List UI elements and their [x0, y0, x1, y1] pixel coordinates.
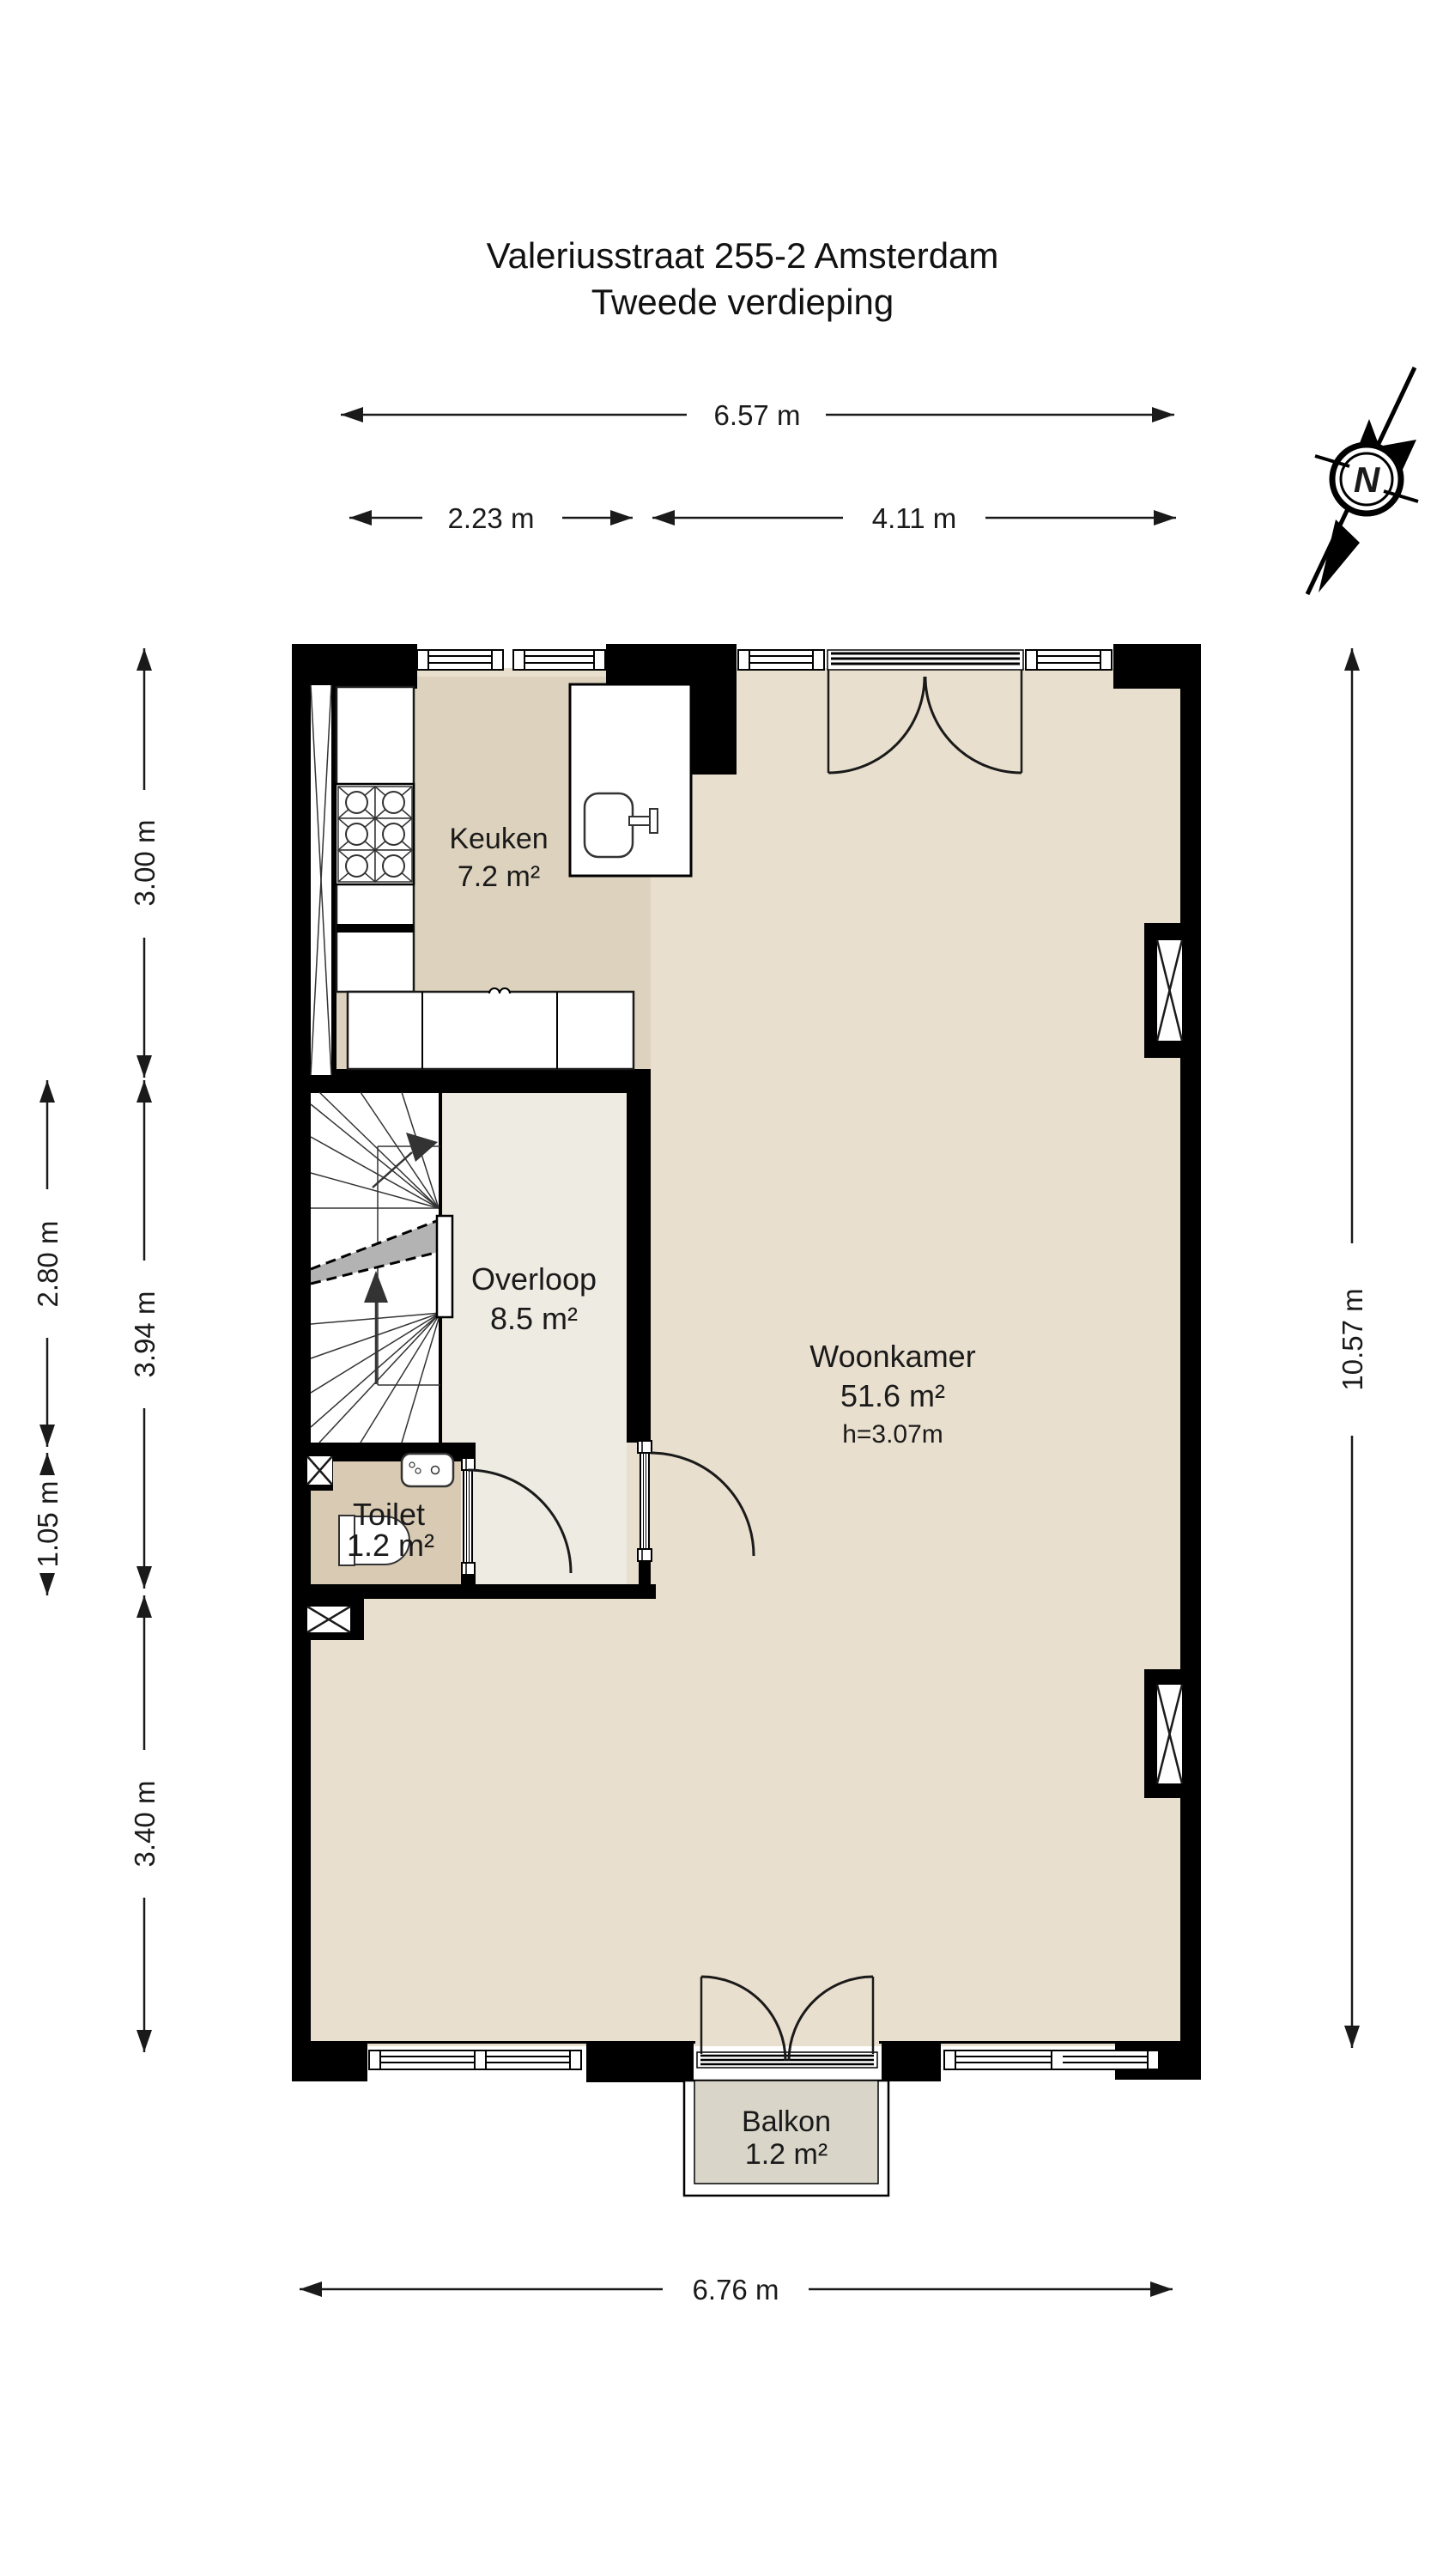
- room-area-balkon: 1.2 m²: [745, 2138, 828, 2171]
- window: [475, 2050, 581, 2069]
- dimension-top-total: 6.57 m: [341, 399, 1174, 431]
- flue-x-upper: [1157, 940, 1182, 1041]
- french-door-threshold-top: [828, 650, 1023, 670]
- room-area-overloop: 8.5 m²: [490, 1301, 578, 1336]
- toilet-hand-basin: [402, 1454, 453, 1486]
- room-label-keuken: Keuken: [449, 823, 548, 855]
- window: [417, 650, 503, 670]
- stairs-railing: [437, 1216, 452, 1317]
- shaft-x: [311, 685, 331, 1075]
- room-height-woonkamer: h=3.07m: [842, 1420, 943, 1449]
- kitchen-counter-bottom: [348, 988, 634, 1069]
- room-area-toilet: 1.2 m²: [347, 1528, 434, 1563]
- window: [1026, 650, 1112, 670]
- page-subtitle: Tweede verdieping: [591, 282, 894, 322]
- kitchen-sink-unit: [570, 684, 691, 876]
- floorplan-drawing: Valeriusstraat 255-2 Amsterdam Tweede ve…: [0, 0, 1449, 2576]
- window: [369, 2050, 475, 2069]
- sink-basin: [585, 793, 633, 857]
- dimension-bottom-total: 6.76 m: [300, 2274, 1173, 2306]
- room-area-keuken: 7.2 m²: [458, 860, 540, 893]
- svg-text:6.57 m: 6.57 m: [714, 399, 801, 431]
- dimension-left-upper: 3.00 m: [129, 648, 161, 1078]
- dimension-left-outer-lower: 1.05 m: [32, 1453, 64, 1595]
- floorplan-page: Valeriusstraat 255-2 Amsterdam Tweede ve…: [0, 0, 1449, 2576]
- dimension-left-middle: 3.94 m: [129, 1080, 161, 1589]
- windows-top: [417, 650, 1112, 670]
- window: [513, 650, 605, 670]
- room-label-toilet: Toilet: [353, 1497, 425, 1532]
- room-label-balkon: Balkon: [742, 2105, 831, 2138]
- dimension-top-right: 4.11 m: [652, 502, 1176, 534]
- window: [738, 650, 824, 670]
- dimension-top-left: 2.23 m: [349, 502, 633, 534]
- svg-text:2.23 m: 2.23 m: [448, 502, 535, 534]
- balcony-door-threshold: [697, 2052, 877, 2068]
- svg-text:3.00 m: 3.00 m: [129, 820, 161, 907]
- column-x-1: [307, 1456, 332, 1485]
- dimension-left-outer-upper: 2.80 m: [32, 1080, 64, 1447]
- burner-grid: [338, 787, 412, 882]
- svg-text:3.40 m: 3.40 m: [129, 1781, 161, 1868]
- dimension-right-total: 10.57 m: [1337, 648, 1368, 2048]
- dimension-left-lower: 3.40 m: [129, 1595, 161, 2052]
- north-arrow-icon: N: [1307, 368, 1418, 594]
- room-label-overloop: Overloop: [471, 1261, 597, 1297]
- svg-text:3.94 m: 3.94 m: [129, 1291, 161, 1378]
- window: [944, 2050, 1052, 2069]
- svg-text:4.11 m: 4.11 m: [872, 502, 956, 534]
- column-x-2: [307, 1607, 350, 1632]
- svg-text:2.80 m: 2.80 m: [32, 1221, 64, 1308]
- window: [1052, 2050, 1159, 2069]
- north-label: N: [1354, 459, 1381, 500]
- stove: [336, 784, 414, 884]
- room-area-woonkamer: 51.6 m²: [840, 1378, 945, 1413]
- flue-x-lower: [1157, 1685, 1182, 1783]
- windows-bottom: [369, 2050, 1159, 2069]
- room-label-woonkamer: Woonkamer: [809, 1339, 975, 1374]
- svg-text:10.57 m: 10.57 m: [1337, 1288, 1368, 1390]
- svg-text:6.76 m: 6.76 m: [693, 2274, 779, 2306]
- svg-text:1.05 m: 1.05 m: [32, 1481, 64, 1568]
- page-title: Valeriusstraat 255-2 Amsterdam: [487, 235, 999, 276]
